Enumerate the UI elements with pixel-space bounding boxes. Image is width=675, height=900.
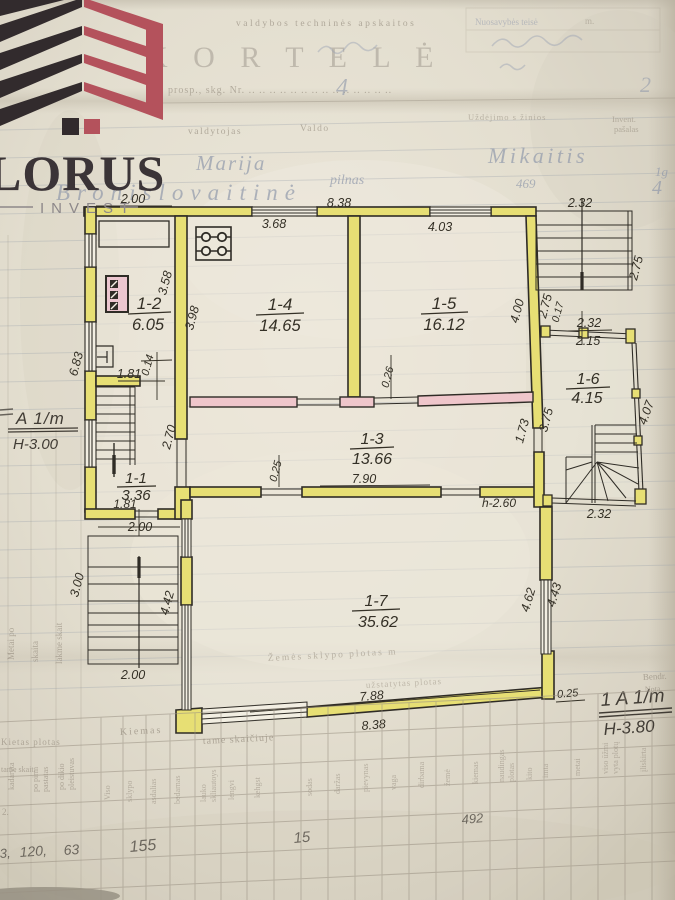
svg-text:tame skait.: tame skait. <box>1 765 36 774</box>
svg-text:14.65: 14.65 <box>259 317 301 335</box>
svg-text:2.15: 2.15 <box>575 334 600 348</box>
svg-text:3.68: 3.68 <box>262 217 286 231</box>
svg-text:0.25: 0.25 <box>557 687 580 701</box>
svg-text:13.66: 13.66 <box>352 451 392 468</box>
svg-text:Bendr.: Bendr. <box>643 671 667 682</box>
svg-text:Nota: Nota <box>645 684 661 694</box>
svg-text:valdytojas: valdytojas <box>188 127 242 137</box>
svg-text:2.: 2. <box>2 807 9 817</box>
svg-text:Kietas plotas: Kietas plotas <box>1 737 61 747</box>
svg-text:skaita: skaita <box>30 641 40 662</box>
svg-text:1.81: 1.81 <box>113 497 136 511</box>
svg-text:2: 2 <box>640 72 651 97</box>
svg-text:6.05: 6.05 <box>132 316 165 334</box>
svg-text:lengvi: lengvi <box>227 779 236 800</box>
svg-text:469: 469 <box>516 176 536 191</box>
svg-text:vyta plotų: vyta plotų <box>611 742 620 774</box>
svg-text:1-2: 1-2 <box>137 294 162 313</box>
svg-text:po dikio: po dikio <box>57 764 66 790</box>
svg-text:2.32: 2.32 <box>576 316 601 330</box>
svg-text:INVEST: INVEST <box>40 200 136 217</box>
svg-text:2.00: 2.00 <box>120 668 145 682</box>
svg-text:pievynas: pievynas <box>361 764 370 792</box>
svg-text:bedarnas: bedarnas <box>173 776 182 804</box>
svg-text:kiemas: kiemas <box>471 761 480 784</box>
svg-text:H-3.00: H-3.00 <box>13 436 59 453</box>
svg-text:120,: 120, <box>19 842 47 860</box>
svg-text:vaga: vaga <box>389 774 398 790</box>
svg-text:8.38: 8.38 <box>327 196 351 210</box>
svg-text:viso ūžmi: viso ūžmi <box>601 742 610 774</box>
svg-text:Uždėjimo s žinios: Uždėjimo s žinios <box>468 112 546 122</box>
svg-text:Valdo: Valdo <box>300 124 330 134</box>
svg-text:daržas: daržas <box>333 774 342 794</box>
svg-text:1-6: 1-6 <box>576 371 599 388</box>
svg-text:492: 492 <box>461 810 485 827</box>
svg-text:Kiemas: Kiemas <box>120 725 163 738</box>
svg-text:kehgst: kehgst <box>253 776 262 798</box>
svg-text:Mikaitis: Mikaitis <box>487 143 588 168</box>
svg-text:m.: m. <box>585 16 594 26</box>
svg-text:2.32: 2.32 <box>567 196 592 210</box>
svg-text:7.88: 7.88 <box>359 688 385 704</box>
svg-text:1-3: 1-3 <box>360 431 383 448</box>
svg-text:sodas: sodas <box>305 778 314 796</box>
svg-text:1-4: 1-4 <box>268 295 293 314</box>
svg-text:3,: 3, <box>0 845 11 861</box>
svg-text:16.12: 16.12 <box>423 316 464 334</box>
svg-text:kito: kito <box>525 768 534 780</box>
svg-text:4.03: 4.03 <box>428 220 452 234</box>
svg-text:imta: imta <box>541 763 550 778</box>
svg-text:Metai po: Metai po <box>6 627 16 660</box>
svg-text:Nuosavybės teisė: Nuosavybės teisė <box>475 17 538 27</box>
svg-text:Viso: Viso <box>103 785 112 800</box>
svg-text:4.15: 4.15 <box>571 390 602 407</box>
svg-text:prosp., skg. Nr. .. .. ..: prosp., skg. Nr. .. .. .. .. .. .. .. ..… <box>168 85 392 96</box>
svg-text:lakme skait: lakme skait <box>54 622 64 664</box>
svg-text:15: 15 <box>293 829 312 847</box>
svg-text:35.62: 35.62 <box>358 614 398 631</box>
svg-text:asdalias: asdalias <box>149 779 158 804</box>
svg-text:naudingas: naudingas <box>497 750 506 782</box>
svg-text:2.32: 2.32 <box>586 507 611 521</box>
svg-text:įliskirta: įliskirta <box>639 747 648 772</box>
svg-text:LORUS: LORUS <box>0 145 165 201</box>
svg-text:1.81: 1.81 <box>117 367 141 381</box>
svg-text:7.90: 7.90 <box>352 472 376 486</box>
svg-text:dirbama: dirbama <box>417 761 426 788</box>
svg-text:skliautoys: skliautoys <box>209 770 218 802</box>
svg-text:sklypo: sklypo <box>125 781 134 802</box>
svg-text:žemė: žemė <box>443 769 452 786</box>
svg-text:pastatas: pastatas <box>41 767 50 792</box>
svg-text:Marija: Marija <box>195 151 266 175</box>
svg-text:1-1: 1-1 <box>125 470 147 487</box>
svg-text:4: 4 <box>336 75 348 101</box>
svg-text:h-2.60: h-2.60 <box>482 496 516 510</box>
svg-text:pilnas: pilnas <box>329 173 365 188</box>
svg-text:plotas: plotas <box>507 763 516 782</box>
svg-text:1-7: 1-7 <box>364 593 388 610</box>
svg-text:63: 63 <box>63 841 80 858</box>
svg-text:Invent.: Invent. <box>612 114 636 124</box>
svg-text:lauko: lauko <box>199 784 208 802</box>
svg-text:metai: metai <box>573 757 582 776</box>
svg-text:155: 155 <box>129 837 157 856</box>
svg-text:valdybos techninės apskaitos: valdybos techninės apskaitos <box>236 19 416 29</box>
svg-text:pleistuvas: pleistuvas <box>67 758 76 790</box>
svg-text:A 1/m: A 1/m <box>15 409 65 428</box>
svg-text:pašalas: pašalas <box>614 124 639 134</box>
svg-text:1-5: 1-5 <box>432 294 457 313</box>
svg-text:1g: 1g <box>655 164 669 179</box>
svg-text:4: 4 <box>652 177 662 199</box>
svg-text:K O R T E L Ė: K O R T E L Ė <box>146 41 442 74</box>
